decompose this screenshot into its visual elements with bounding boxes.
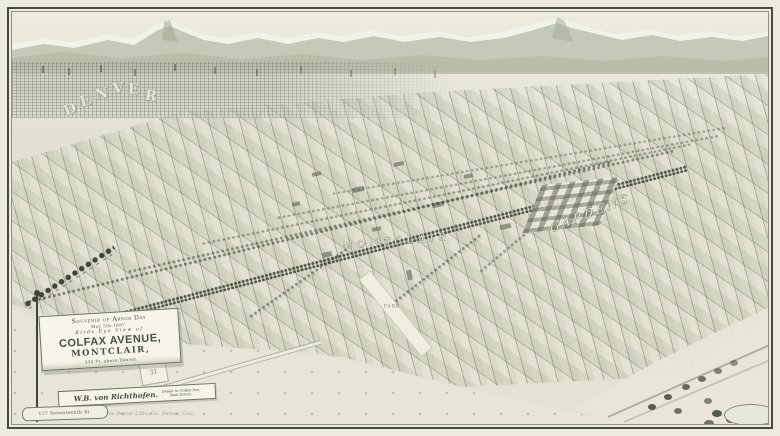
lithographer-imprint: The Denver Litho. Co., Denver, Colo. <box>106 411 256 416</box>
flagpole <box>36 294 38 422</box>
pond <box>724 404 768 424</box>
scrub-trees <box>648 404 656 410</box>
dealer-detail: Dealer in Colfax Ave. Real Estate. <box>162 388 201 398</box>
dealer-line2: Real Estate. <box>170 392 192 397</box>
label-letter: R <box>144 87 158 104</box>
label-letter: D <box>62 100 79 119</box>
address-ribbon: 117 Seventeenth St. <box>22 405 108 422</box>
label-letter: N <box>94 85 109 103</box>
park-label: PARK <box>384 305 482 310</box>
label-letter: E <box>128 81 139 97</box>
map-canvas: D E N V E R PARK <box>12 12 768 424</box>
city-skyline-spires <box>42 66 44 73</box>
lithograph-map-plate: D E N V E R PARK <box>0 0 780 436</box>
label-letter: V <box>112 80 124 97</box>
scrub-trees <box>712 410 722 417</box>
title-cartouche: Souvenir of Arbor Day May 5th 1887. Bird… <box>38 308 181 371</box>
dealer-name: W.B. von Richthofen. <box>74 389 159 402</box>
label-letter: E <box>78 92 93 110</box>
